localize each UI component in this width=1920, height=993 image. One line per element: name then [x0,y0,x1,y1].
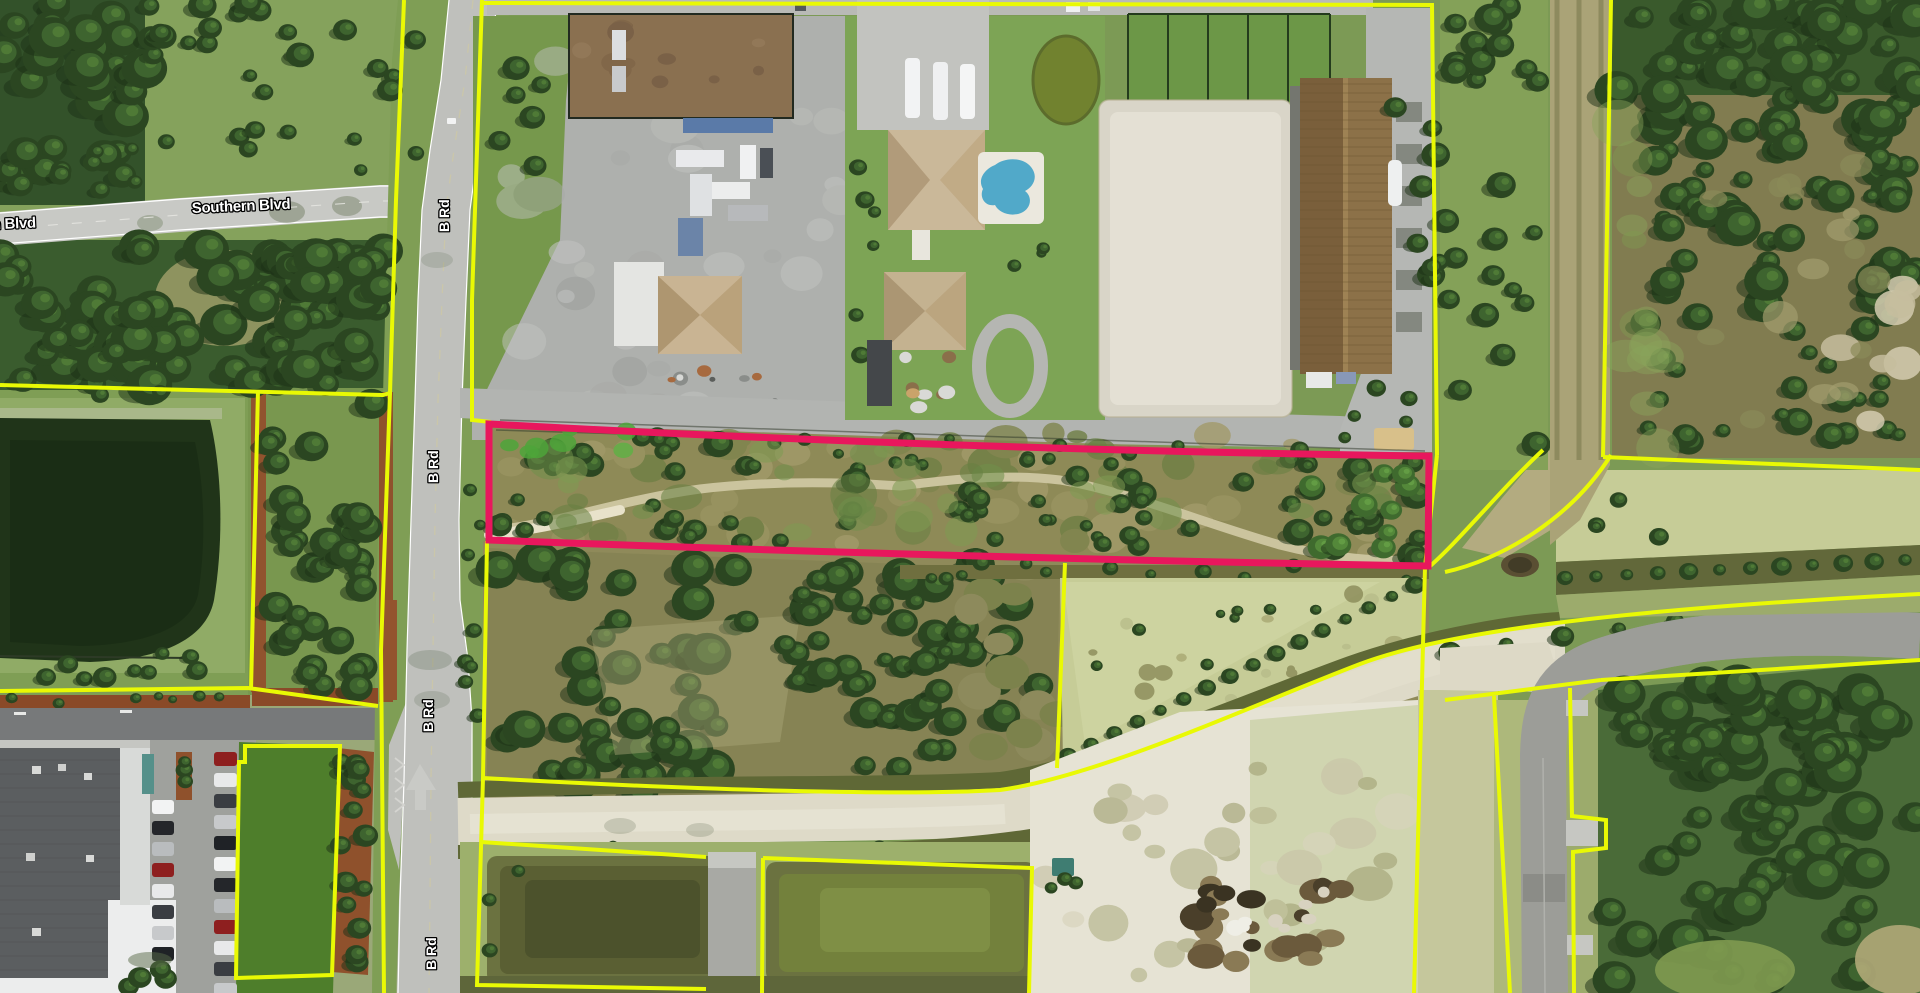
svg-text:B Rd: B Rd [425,450,441,483]
svg-text:B Rd: B Rd [420,699,436,732]
svg-text:B Rd: B Rd [423,937,439,970]
svg-text:n Blvd: n Blvd [0,214,36,233]
svg-text:B Rd: B Rd [436,199,452,232]
